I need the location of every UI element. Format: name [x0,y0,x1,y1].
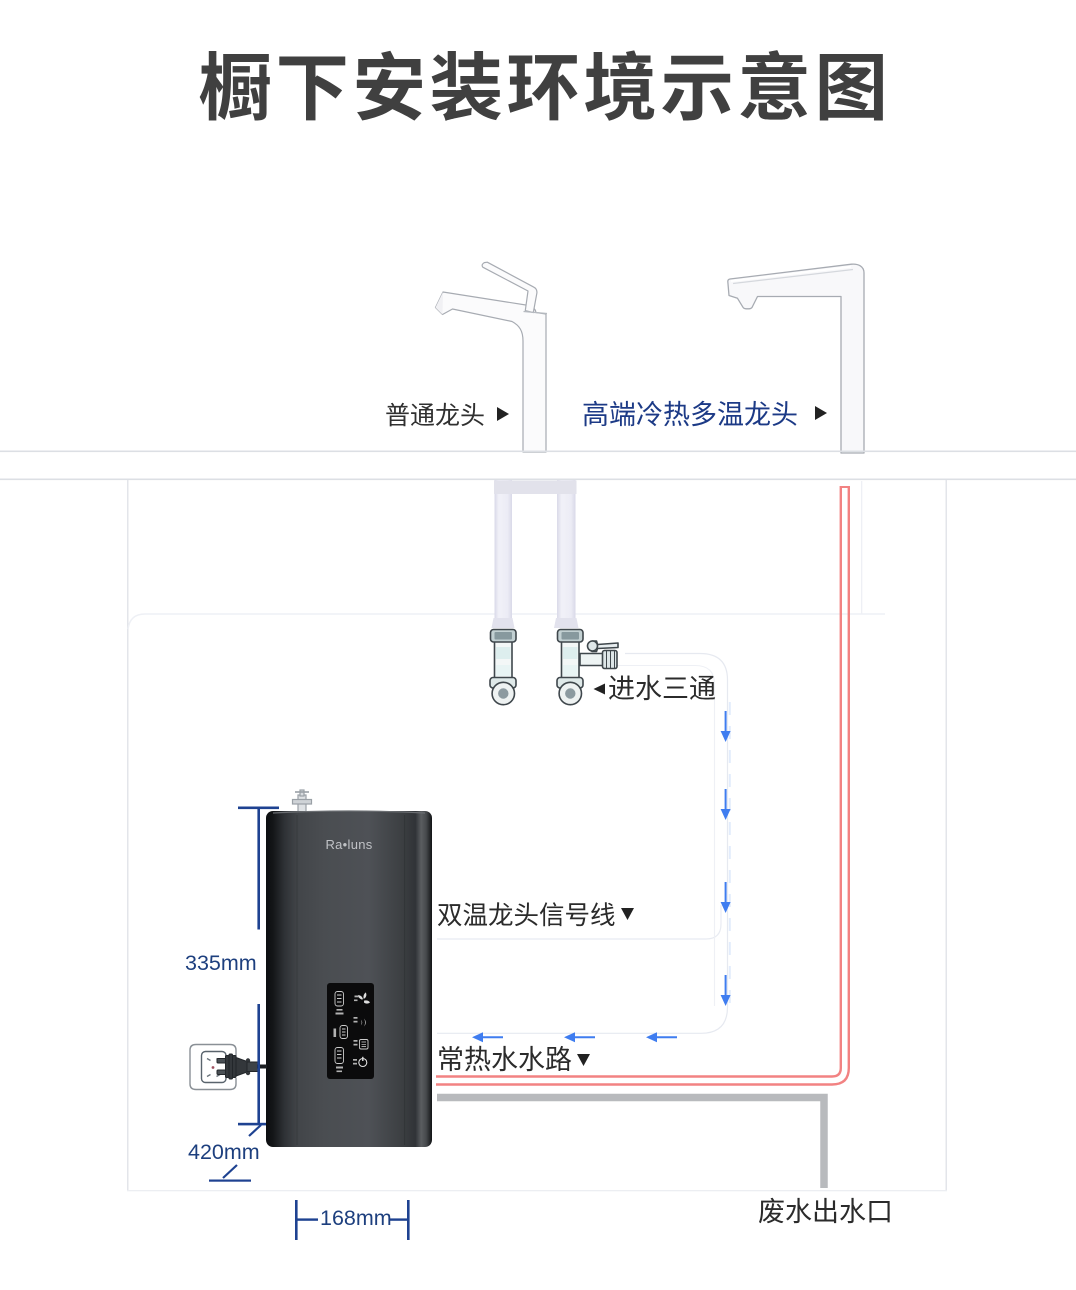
svg-text:168mm: 168mm [320,1206,392,1230]
svg-text:常热水水路: 常热水水路 [437,1045,572,1075]
svg-text:橱下安装环境示意图: 橱下安装环境示意图 [199,47,892,130]
svg-text:双温龙头信号线: 双温龙头信号线 [437,902,616,930]
svg-text:420mm: 420mm [188,1140,260,1164]
svg-text:高端冷热多温龙头: 高端冷热多温龙头 [582,400,798,430]
svg-text:普通龙头: 普通龙头 [385,402,485,430]
svg-text:废水出水口: 废水出水口 [758,1197,893,1227]
svg-text:335mm: 335mm [185,951,257,975]
svg-text:Ra•luns: Ra•luns [325,837,372,852]
svg-text:进水三通: 进水三通 [608,674,716,704]
